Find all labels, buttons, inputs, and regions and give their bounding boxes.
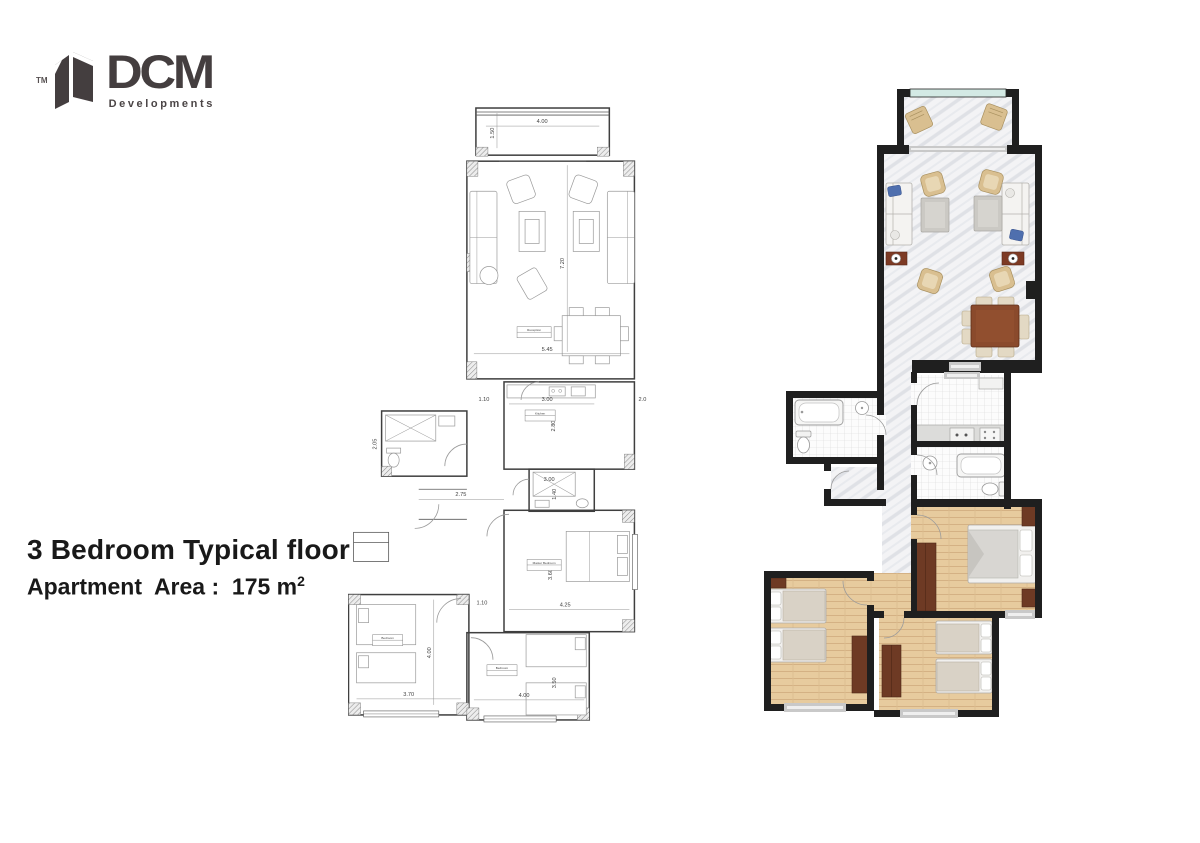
tag-bedroom-1: Bedroom [381,636,394,640]
tag-kitchen: Kitchen [535,411,546,415]
brand-logo: TM DCM Developments [36,50,215,110]
entry-hall-floor [829,467,884,503]
bw-round-table [480,267,498,285]
dim-bath2-width: 3.00 [544,477,555,483]
single-bed [936,659,992,693]
bw-dining-table [554,308,628,364]
apartment-area: Apartment Area : 175 m2 [27,573,350,601]
logo-wordmark: DCM [106,50,224,95]
rendered-floor-plan [753,83,1055,728]
single-bed [936,621,992,654]
blueprint-floor-plan: 4.00 1.50 5.45 7.20 1.10 3.00 2.80 2.0 2… [348,103,660,735]
fridge [979,378,1003,389]
bw-armchair [506,174,537,205]
bw-lounge-chair [516,267,548,301]
bw-single-bed [526,635,586,715]
bathtub [795,400,843,425]
dcm-building-icon [51,50,97,110]
bw-toilet [576,499,588,508]
dim-kitchen-width: 3.00 [542,397,553,403]
dim-balcony-depth: 1.50 [490,128,496,139]
tag-master-bedroom: Master Bedroom [533,561,556,565]
bw-sofa-right [607,191,634,283]
wardrobe [915,543,936,611]
bw-sink [535,500,549,507]
corridor-opening [884,360,912,373]
dim-bath1-depth: 2.05 [373,439,379,450]
dim-corridor-length: 2.75 [455,492,466,498]
bw-coffee-table [519,211,599,251]
dim-hall2-width: 1.10 [476,601,487,607]
dresser [852,636,869,693]
bw-toilet [387,448,401,467]
side-table-lamp [886,252,907,265]
logo-subtitle: Developments [109,98,215,110]
area-exponent: 2 [297,573,305,589]
dim-living-height: 7.20 [560,258,566,269]
stove [980,428,1000,442]
double-bed [968,525,1036,583]
trademark-symbol: TM [36,76,48,85]
page-canvas: TM DCM Developments 3 Bedroom Typical fl… [0,0,1200,843]
area-label: Apartment Area : 175 m [27,574,297,600]
dim-bedroom1-height: 4.00 [427,647,433,658]
balcony-glass-window [910,89,1006,97]
dim-living-width: 5.45 [542,347,553,353]
dim-bedroom3-width: 4.00 [519,693,530,699]
bw-double-bed [566,531,629,581]
toilet [982,482,1005,496]
bathtub [957,454,1005,477]
dim-bedroom1-width: 3.70 [403,692,414,698]
sofa [1002,183,1029,245]
sink [856,402,869,415]
bw-armchair [568,174,599,205]
dim-kitchen-side: 2.0 [639,397,647,403]
logo-text: DCM Developments [106,50,215,110]
dim-bath2-depth: 1.40 [552,489,558,500]
toilet [796,431,811,453]
dim-hall-width: 1.10 [478,397,489,403]
bw-sink [439,416,455,426]
plan-title: 3 Bedroom Typical floor [27,534,350,566]
dim-master-width: 4.25 [560,603,571,609]
title-block: 3 Bedroom Typical floor Apartment Area :… [27,534,350,601]
tag-bedroom-3: Bedroom [496,666,509,670]
dim-bedroom3-height: 3.50 [552,677,558,688]
single-bed [769,589,826,623]
side-table-lamp [1002,252,1024,265]
sink [923,456,937,470]
kitchen-sink [950,428,974,442]
single-bed [769,628,826,662]
nightstand [769,578,786,588]
wardrobe [882,645,901,697]
dim-kitchen-depth: 2.80 [551,421,557,432]
blue-pillow [887,185,902,197]
dim-balcony-width: 4.00 [537,119,548,125]
tag-reception: Reception [527,328,541,332]
sofa [886,183,912,245]
bw-bathtub [386,415,436,441]
